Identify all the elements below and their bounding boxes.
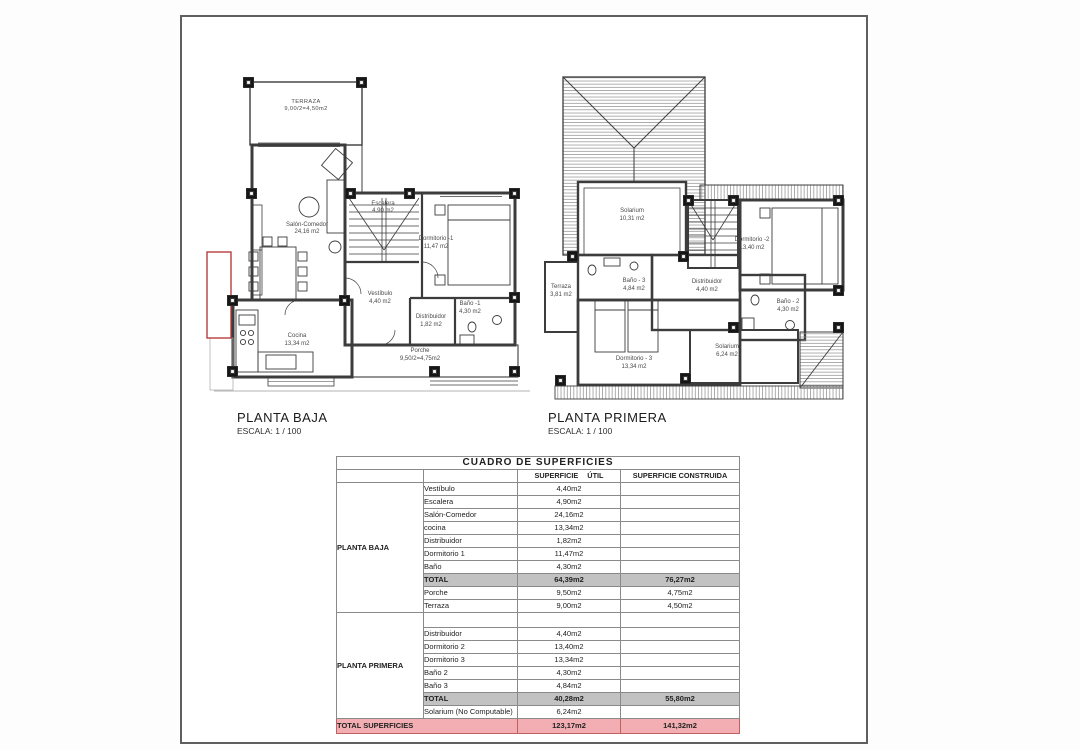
value-cell	[518, 613, 621, 628]
table-header-row: SUPERFICIE ÚTIL SUPERFICIE CONSTRUIDA	[337, 470, 740, 483]
value-cell	[621, 667, 740, 680]
value-cell	[621, 680, 740, 693]
plan-scale: ESCALA: 1 / 100	[548, 426, 667, 436]
drawing-page: TERRAZA 9,00/2=4,50m2 Salón-Comedor 24,1…	[0, 0, 1080, 750]
value-cell: 6,24m2	[518, 706, 621, 719]
value-cell: 1,82m2	[518, 535, 621, 548]
value-cell: 9,00m2	[518, 600, 621, 613]
room-label-bano3: Baño - 3	[623, 278, 646, 284]
svg-text:24,16 m2: 24,16 m2	[294, 229, 320, 235]
value-cell: 76,27m2	[621, 574, 740, 587]
room-name-cell: Solarium (No Computable)	[424, 706, 518, 719]
room-name-cell: cocina	[424, 522, 518, 535]
value-cell: 55,80m2	[621, 693, 740, 706]
room-label-distribuidor-pp: Distribuidor	[692, 279, 722, 285]
planta-baja-title-block: PLANTA BAJA ESCALA: 1 / 100	[237, 410, 328, 436]
value-cell: 13,34m2	[518, 522, 621, 535]
dining-table	[249, 237, 307, 299]
value-cell	[621, 548, 740, 561]
floor-label-cell: PLANTA BAJA	[337, 483, 424, 613]
value-cell	[621, 522, 740, 535]
value-cell	[621, 535, 740, 548]
surface-table: CUADRO DE SUPERFICIES SUPERFICIE ÚTIL SU…	[336, 456, 740, 734]
roof-hatch	[800, 332, 843, 388]
door-arc	[285, 262, 438, 345]
value-cell: 4,50m2	[621, 600, 740, 613]
sofa	[327, 180, 344, 253]
svg-text:4,90 m2: 4,90 m2	[372, 208, 394, 214]
value-cell	[621, 654, 740, 667]
planta-primera-plan: Solarium 10,31 m2 Dormitorio -2 13,40 m2…	[545, 77, 844, 399]
room-label-dormitorio3: Dormitorio - 3	[616, 356, 653, 362]
value-cell	[621, 483, 740, 496]
plan-title: PLANTA BAJA	[237, 410, 328, 425]
table-row: PLANTA BAJA Vestíbulo 4,40m2	[337, 483, 740, 496]
table-title: CUADRO DE SUPERFICIES	[337, 457, 740, 470]
empty-header-cell	[337, 470, 424, 483]
room-label-dormitorio2: Dormitorio -2	[735, 237, 770, 243]
value-cell	[621, 509, 740, 522]
empty-header-cell	[424, 470, 518, 483]
svg-text:1,82 m2: 1,82 m2	[420, 322, 442, 328]
svg-text:4,84 m2: 4,84 m2	[623, 286, 645, 292]
grand-total-row: TOTAL SUPERFICIES 123,17m2 141,32m2	[337, 719, 740, 734]
room-name-cell: Dormitorio 1	[424, 548, 518, 561]
svg-text:13,34 m2: 13,34 m2	[621, 364, 647, 370]
value-cell: 4,30m2	[518, 667, 621, 680]
svg-text:4,40 m2: 4,40 m2	[369, 299, 391, 305]
armchair	[322, 149, 353, 180]
svg-text:4,30 m2: 4,30 m2	[459, 309, 481, 315]
room-name-cell: Baño 2	[424, 667, 518, 680]
floor-label-cell: PLANTA PRIMERA	[337, 613, 424, 719]
room-label-solarium-sup: Solarium	[620, 208, 644, 214]
room-label-salon: Salón-Comedor	[286, 222, 328, 228]
value-cell: 4,30m2	[518, 561, 621, 574]
room-name-cell: Baño 3	[424, 680, 518, 693]
room-name-cell: Escalera	[424, 496, 518, 509]
table-title-row: CUADRO DE SUPERFICIES	[337, 457, 740, 470]
roof-hatch	[555, 386, 843, 399]
svg-text:11,47 m2: 11,47 m2	[424, 244, 449, 250]
value-cell	[621, 561, 740, 574]
room-name-cell: Vestíbulo	[424, 483, 518, 496]
room-name-cell: Terraza	[424, 600, 518, 613]
room-label-terraza: TERRAZA	[291, 99, 320, 105]
room-name-cell: TOTAL	[424, 574, 518, 587]
col-superficie-util: SUPERFICIE ÚTIL	[518, 470, 621, 483]
room-label-bano2: Baño - 2	[777, 299, 800, 305]
room-name-cell: Baño	[424, 561, 518, 574]
bed	[595, 300, 658, 352]
value-cell: 9,50m2	[518, 587, 621, 600]
svg-text:13,40 m2: 13,40 m2	[739, 245, 765, 251]
value-cell	[621, 706, 740, 719]
pillar-row	[227, 77, 520, 377]
value-cell: 13,34m2	[518, 654, 621, 667]
svg-text:4,40 m2: 4,40 m2	[696, 287, 718, 293]
tv-cabinet	[253, 205, 262, 295]
room-label-cocina: Cocina	[288, 333, 307, 339]
value-cell: 123,17m2	[518, 719, 621, 734]
svg-text:4,30 m2: 4,30 m2	[777, 307, 799, 313]
value-cell: 40,28m2	[518, 693, 621, 706]
value-cell: 13,40m2	[518, 641, 621, 654]
room-label-distribuidor-pb: Distribuidor	[416, 314, 446, 320]
svg-text:10,31 m2: 10,31 m2	[619, 216, 645, 222]
planta-baja-plan: TERRAZA 9,00/2=4,50m2 Salón-Comedor 24,1…	[207, 77, 530, 391]
value-cell: 4,75m2	[621, 587, 740, 600]
room-name-cell: Distribuidor	[424, 628, 518, 641]
svg-text:9,50/2=4,75m2: 9,50/2=4,75m2	[400, 356, 441, 362]
value-cell: 11,47m2	[518, 548, 621, 561]
room-label-solarium-inf: Solarium	[715, 344, 739, 350]
value-cell: 64,39m2	[518, 574, 621, 587]
value-cell	[621, 628, 740, 641]
value-cell: 4,40m2	[518, 483, 621, 496]
grand-total-label: TOTAL SUPERFICIES	[337, 719, 518, 734]
room-label-dormitorio1: Dormitorio -1	[419, 236, 454, 242]
room-name-cell: Dormitorio 3	[424, 654, 518, 667]
plan-title: PLANTA PRIMERA	[548, 410, 667, 425]
room-label-porche: Porche	[410, 348, 430, 354]
table-row: PLANTA PRIMERA	[337, 613, 740, 628]
room-name-cell: Dormitorio 2	[424, 641, 518, 654]
room-label-escalera: Escalera	[371, 201, 395, 207]
col-superficie-construida: SUPERFICIE CONSTRUIDA	[621, 470, 740, 483]
planta-primera-title-block: PLANTA PRIMERA ESCALA: 1 / 100	[548, 410, 667, 436]
room-name-cell	[424, 613, 518, 628]
plan-scale: ESCALA: 1 / 100	[237, 426, 328, 436]
svg-text:3,81 m2: 3,81 m2	[550, 292, 572, 298]
value-cell: 4,40m2	[518, 628, 621, 641]
room-label-terraza-pp: Terraza	[551, 284, 572, 290]
value-cell	[621, 613, 740, 628]
svg-text:9,00/2=4,50m2: 9,00/2=4,50m2	[284, 106, 327, 112]
room-name-cell: Salón-Comedor	[424, 509, 518, 522]
round-table	[299, 197, 319, 217]
value-cell: 24,16m2	[518, 509, 621, 522]
room-name-cell: TOTAL	[424, 693, 518, 706]
value-cell: 141,32m2	[621, 719, 740, 734]
bed	[760, 208, 838, 284]
room-name-cell: Porche	[424, 587, 518, 600]
value-cell	[621, 496, 740, 509]
room-label-bano1: Baño -1	[459, 301, 481, 307]
svg-text:6,24 m2: 6,24 m2	[716, 352, 738, 358]
room-label-vestibulo: Vestíbulo	[368, 291, 393, 297]
toilet-icon	[460, 316, 502, 345]
value-cell: 4,84m2	[518, 680, 621, 693]
value-cell	[621, 641, 740, 654]
svg-text:13,34 m2: 13,34 m2	[284, 341, 310, 347]
value-cell: 4,90m2	[518, 496, 621, 509]
room-name-cell: Distribuidor	[424, 535, 518, 548]
